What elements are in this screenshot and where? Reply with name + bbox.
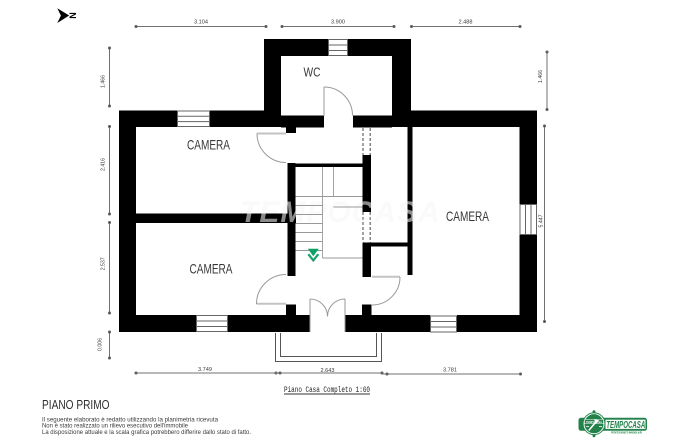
svg-text:2.488: 2.488 xyxy=(459,20,473,26)
svg-text:3.900: 3.900 xyxy=(331,19,345,25)
svg-text:5.447: 5.447 xyxy=(538,214,544,227)
svg-text:La disposizione attuale e la s: La disposizione attuale e la scala grafi… xyxy=(42,429,251,436)
svg-text:N: N xyxy=(68,12,78,18)
svg-text:WC: WC xyxy=(304,65,321,79)
svg-text:PROFESSIONISTI IMMOBILIARI: PROFESSIONISTI IMMOBILIARI xyxy=(611,430,642,434)
svg-text:1.466: 1.466 xyxy=(538,70,544,83)
svg-text:1.466: 1.466 xyxy=(101,75,107,88)
svg-text:2.537: 2.537 xyxy=(101,257,107,270)
svg-text:CAMERA: CAMERA xyxy=(446,209,490,224)
svg-text:2.416: 2.416 xyxy=(101,158,107,171)
svg-text:CAMERA: CAMERA xyxy=(190,261,234,276)
svg-text:TEMPOCASA: TEMPOCASA xyxy=(606,420,645,431)
svg-text:3.749: 3.749 xyxy=(198,367,212,373)
svg-text:3.104: 3.104 xyxy=(194,19,208,25)
svg-text:3.781: 3.781 xyxy=(443,368,457,374)
svg-text:2.643: 2.643 xyxy=(321,368,335,374)
svg-text:CAMERA: CAMERA xyxy=(187,137,231,152)
svg-text:0.006: 0.006 xyxy=(98,338,104,351)
svg-text:PIANO PRIMO: PIANO PRIMO xyxy=(42,397,110,412)
